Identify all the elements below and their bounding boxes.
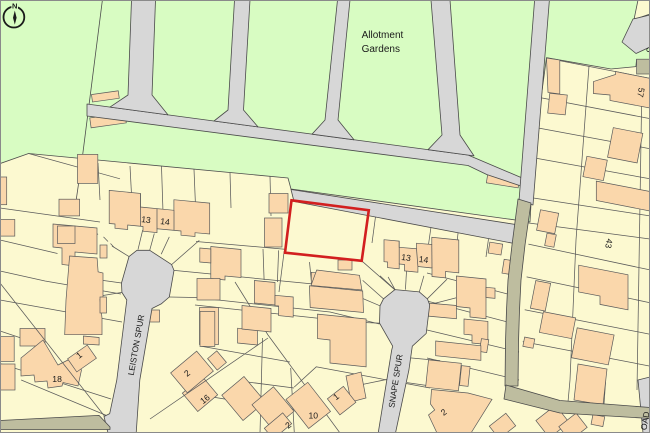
svg-text:57: 57	[635, 87, 647, 98]
svg-text:Allotment: Allotment	[362, 30, 404, 41]
svg-text:18: 18	[52, 374, 62, 384]
svg-text:13: 13	[401, 252, 412, 263]
svg-text:14: 14	[160, 216, 171, 227]
svg-text:13: 13	[141, 214, 152, 225]
svg-text:43: 43	[603, 238, 615, 249]
svg-text:Gardens: Gardens	[362, 44, 400, 55]
svg-text:14: 14	[418, 254, 429, 265]
svg-text:10: 10	[309, 411, 319, 421]
svg-text:N: N	[12, 2, 17, 11]
svg-text:OAD: OAD	[638, 411, 650, 431]
